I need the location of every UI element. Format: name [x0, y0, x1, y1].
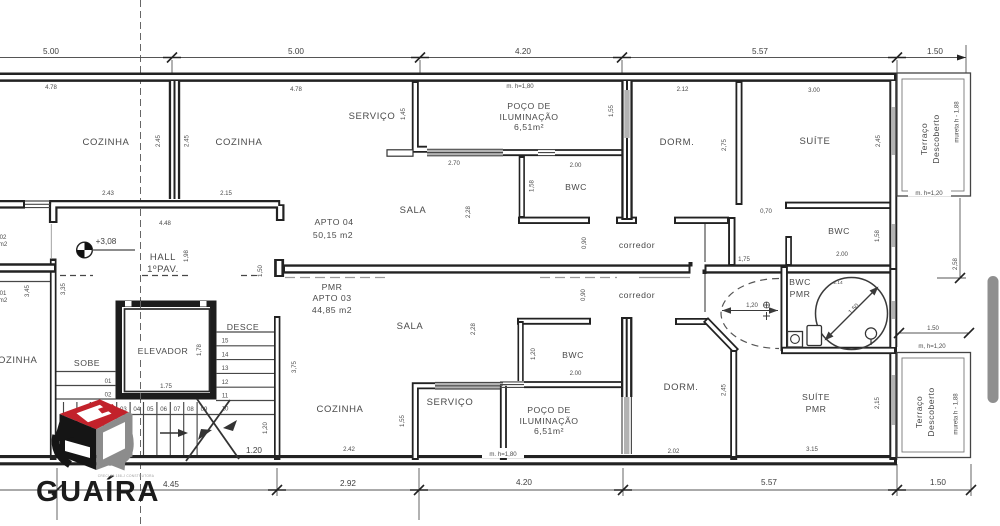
svg-text:APTO 04: APTO 04 [314, 217, 353, 227]
svg-text:3,75: 3,75 [291, 360, 298, 372]
svg-text:1.20: 1.20 [246, 446, 262, 455]
svg-text:44,85 m2: 44,85 m2 [312, 305, 352, 315]
svg-text:1ºPAV.: 1ºPAV. [147, 264, 179, 275]
svg-text:2.14: 2.14 [833, 280, 843, 286]
svg-text:2.45: 2.45 [155, 134, 162, 146]
svg-text:1.50: 1.50 [930, 478, 946, 487]
svg-text:4.45: 4.45 [163, 480, 179, 489]
svg-text:2,58: 2,58 [952, 257, 959, 269]
svg-text:2.92: 2.92 [340, 479, 356, 488]
svg-text:mureta h - 1,88: mureta h - 1,88 [953, 393, 960, 435]
svg-text:0,70: 0,70 [760, 208, 772, 215]
svg-text:+3,08: +3,08 [96, 237, 117, 246]
svg-text:2.70: 2.70 [448, 160, 460, 167]
svg-text:1,58: 1,58 [874, 229, 881, 241]
svg-text:SERVIÇO: SERVIÇO [349, 111, 396, 122]
svg-text:11: 11 [222, 393, 229, 400]
svg-text:3,35: 3,35 [60, 282, 67, 294]
svg-text:5.57: 5.57 [752, 47, 768, 56]
svg-text:Terraço: Terraço [919, 123, 929, 155]
svg-text:2,45: 2,45 [721, 383, 728, 395]
svg-text:12: 12 [222, 379, 229, 386]
svg-text:DORM.: DORM. [664, 382, 699, 393]
svg-text:0,90: 0,90 [580, 288, 587, 300]
svg-text:2,28: 2,28 [470, 322, 477, 334]
svg-text:4.20: 4.20 [515, 47, 531, 56]
svg-text:14: 14 [222, 351, 229, 358]
svg-text:PMR: PMR [790, 289, 811, 299]
svg-text:1,58: 1,58 [529, 179, 536, 191]
svg-text:2.00: 2.00 [570, 162, 582, 169]
svg-text:2.42: 2.42 [343, 446, 355, 453]
svg-text:ELEVADOR: ELEVADOR [138, 346, 189, 356]
svg-text:1,45: 1,45 [400, 107, 407, 119]
svg-text:DESCE: DESCE [227, 322, 259, 332]
svg-text:DORM.: DORM. [660, 137, 695, 148]
svg-text:1,78: 1,78 [196, 343, 203, 355]
svg-text:COZINHA: COZINHA [0, 355, 38, 366]
svg-text:2,75: 2,75 [721, 138, 728, 150]
svg-text:Descoberto: Descoberto [926, 387, 936, 436]
svg-text:ILUMINAÇÃO: ILUMINAÇÃO [519, 416, 578, 426]
svg-text:04: 04 [133, 406, 140, 413]
svg-text:4.78: 4.78 [290, 86, 302, 93]
svg-text:SALA: SALA [400, 205, 427, 216]
svg-text:5.00: 5.00 [43, 47, 59, 56]
svg-text:2.00: 2.00 [836, 251, 848, 258]
svg-text:3,45: 3,45 [24, 284, 31, 296]
svg-text:POÇO DE: POÇO DE [507, 101, 551, 111]
svg-text:SERVIÇO: SERVIÇO [427, 397, 474, 408]
svg-text:1.50: 1.50 [927, 47, 943, 56]
svg-text:1.75: 1.75 [160, 383, 172, 390]
svg-text:01: 01 [105, 378, 112, 385]
svg-text:1,20: 1,20 [530, 347, 537, 359]
svg-text:m. h=1,80: m. h=1,80 [506, 83, 534, 90]
svg-text:5.00: 5.00 [288, 47, 304, 56]
svg-text:SALA: SALA [397, 321, 424, 332]
svg-text:m2: m2 [0, 297, 8, 304]
svg-text:1,55: 1,55 [608, 104, 615, 116]
svg-text:6,51m²: 6,51m² [534, 426, 564, 436]
svg-text:APTO 03: APTO 03 [312, 293, 351, 303]
svg-text:POÇO DE: POÇO DE [527, 405, 571, 415]
svg-text:1,75: 1,75 [738, 256, 750, 263]
svg-text:HALL: HALL [150, 252, 176, 263]
svg-text:1,50: 1,50 [257, 264, 264, 276]
svg-text:BWC: BWC [789, 277, 811, 287]
svg-text:2.12: 2.12 [677, 86, 689, 93]
svg-text:Descoberto: Descoberto [931, 114, 941, 163]
svg-text:1,20: 1,20 [262, 421, 269, 433]
svg-text:1,98: 1,98 [183, 249, 190, 261]
svg-text:4.20: 4.20 [516, 478, 532, 487]
svg-text:3.00: 3.00 [808, 87, 820, 94]
svg-text:ILUMINAÇÃO: ILUMINAÇÃO [499, 112, 558, 122]
svg-text:PMR: PMR [806, 404, 827, 414]
svg-text:2,45: 2,45 [875, 134, 882, 146]
svg-text:4.78: 4.78 [45, 84, 57, 91]
svg-text:0,90: 0,90 [581, 236, 588, 248]
svg-text:1.50: 1.50 [927, 325, 939, 332]
svg-text:06: 06 [160, 406, 167, 413]
svg-text:BWC: BWC [828, 226, 850, 236]
svg-text:COZINHA: COZINHA [83, 137, 130, 148]
svg-text:SUÍTE: SUÍTE [802, 392, 830, 402]
svg-text:2.45: 2.45 [184, 134, 191, 146]
svg-text:08: 08 [187, 406, 194, 413]
svg-text:5.57: 5.57 [761, 478, 777, 487]
svg-text:2.15: 2.15 [220, 190, 232, 197]
svg-text:2.00: 2.00 [570, 370, 582, 377]
svg-text:2.02: 2.02 [668, 448, 680, 455]
svg-text:1,20: 1,20 [746, 302, 758, 309]
svg-text:4.48: 4.48 [159, 220, 171, 227]
svg-text:2,15: 2,15 [874, 396, 881, 408]
svg-text:PMR: PMR [322, 282, 343, 292]
svg-text:SUÍTE: SUÍTE [800, 136, 831, 147]
svg-text:COZINHA: COZINHA [216, 137, 263, 148]
svg-text:m2: m2 [0, 241, 8, 248]
svg-text:SOBE: SOBE [74, 358, 100, 368]
svg-text:mureta h - 1,88: mureta h - 1,88 [954, 101, 961, 143]
svg-text:COZINHA: COZINHA [317, 404, 364, 415]
svg-text:m, h=1,20: m, h=1,20 [918, 343, 946, 350]
svg-text:01: 01 [0, 290, 7, 297]
svg-text:6,51m²: 6,51m² [514, 122, 544, 132]
svg-text:GUAÍRA: GUAÍRA [36, 474, 160, 508]
svg-text:15: 15 [222, 338, 229, 345]
svg-text:3.15: 3.15 [806, 446, 818, 453]
svg-text:BWC: BWC [562, 350, 584, 360]
svg-text:1,55: 1,55 [399, 414, 406, 426]
svg-text:2.43: 2.43 [102, 190, 114, 197]
svg-text:BWC: BWC [565, 182, 587, 192]
svg-text:m. h=1,80: m. h=1,80 [489, 451, 517, 458]
svg-text:02: 02 [0, 234, 7, 241]
svg-text:02: 02 [105, 392, 112, 399]
svg-text:13: 13 [222, 365, 229, 372]
svg-text:50,15 m2: 50,15 m2 [313, 230, 353, 240]
svg-text:corredor: corredor [619, 240, 655, 250]
svg-text:05: 05 [147, 406, 154, 413]
svg-text:CRECI 29.158-J CONSTRUTORA: CRECI 29.158-J CONSTRUTORA [98, 474, 155, 478]
svg-text:m. h=1,20: m. h=1,20 [915, 190, 943, 197]
svg-text:Terraço: Terraço [914, 396, 924, 428]
svg-text:2,28: 2,28 [465, 205, 472, 217]
svg-text:corredor: corredor [619, 290, 655, 300]
svg-text:07: 07 [174, 406, 181, 413]
